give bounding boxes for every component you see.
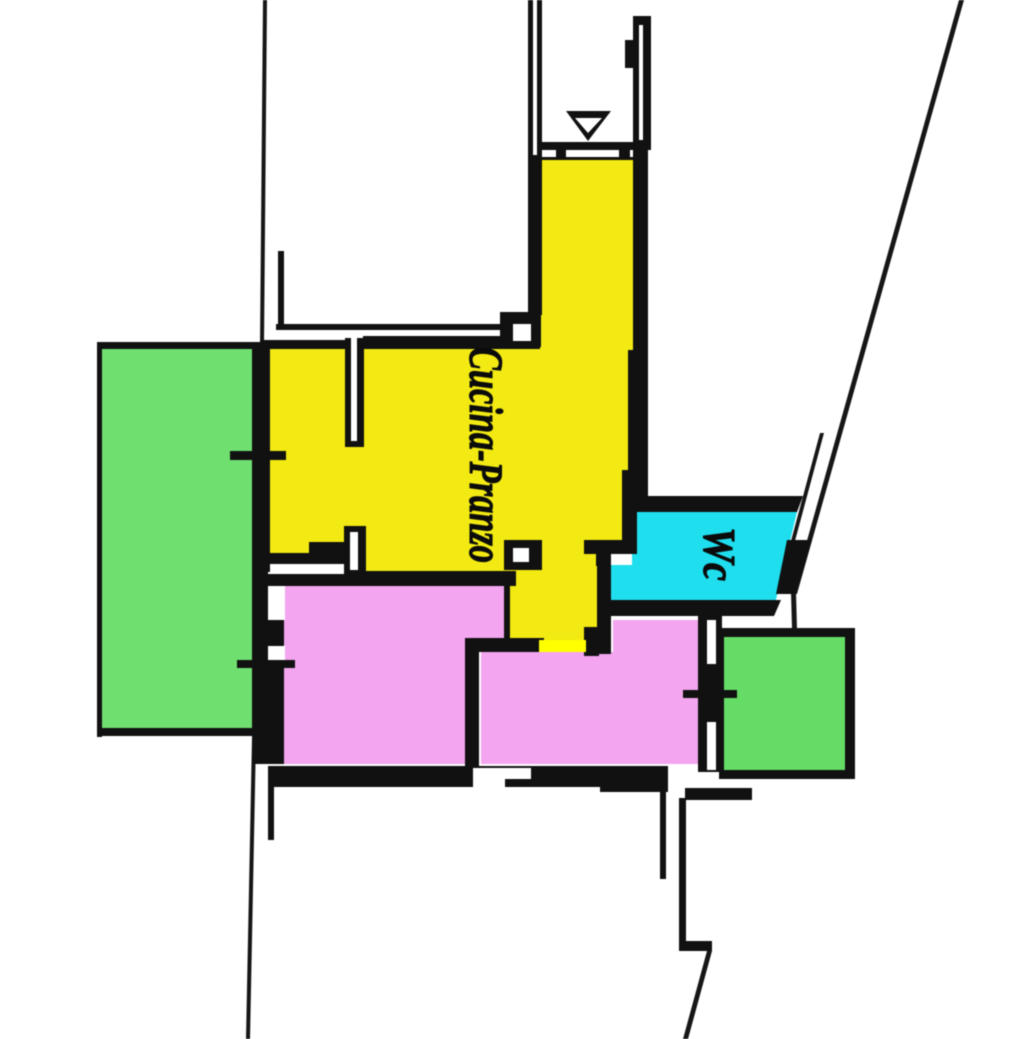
svg-text:Cucina-Pranzo: Cucina-Pranzo <box>459 347 512 563</box>
svg-text:Wc: Wc <box>694 527 745 581</box>
